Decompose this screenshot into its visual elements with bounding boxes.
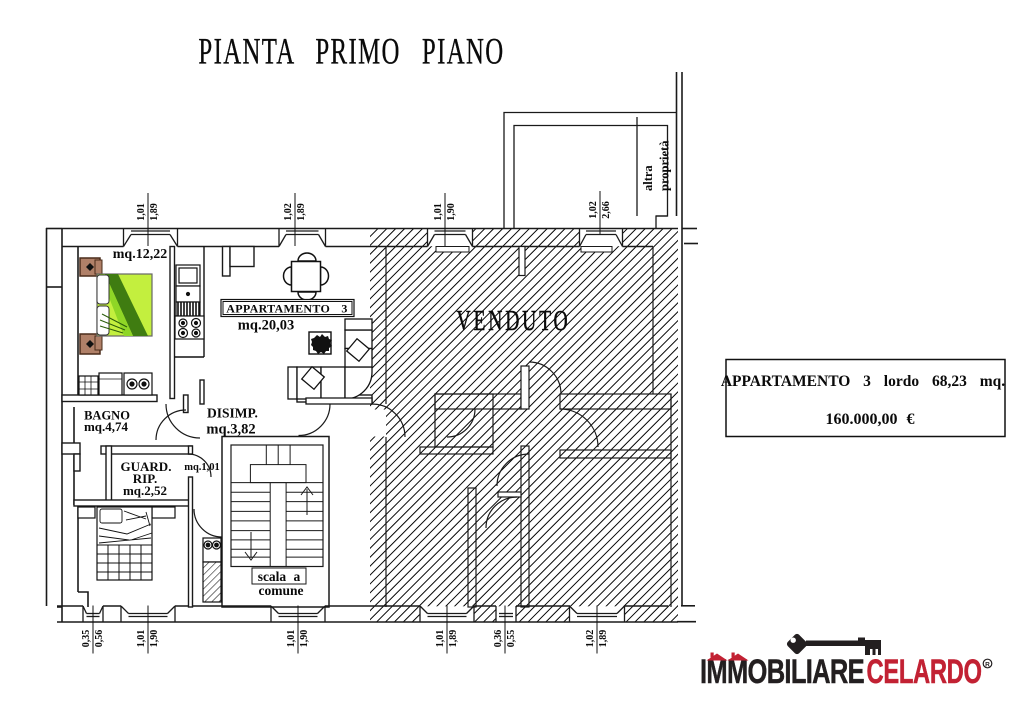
svg-text:0,56: 0,56 — [94, 630, 105, 648]
svg-text:1,89: 1,89 — [296, 203, 307, 221]
svg-text:mq.12,22: mq.12,22 — [113, 247, 167, 262]
svg-text:mq.2,52: mq.2,52 — [123, 483, 167, 498]
svg-text:APPARTAMENTO 3 lordo 68,23 mq.: APPARTAMENTO 3 lordo 68,23 mq. — [721, 373, 1005, 390]
svg-text:1,01: 1,01 — [286, 630, 297, 648]
svg-text:1,01: 1,01 — [136, 203, 147, 221]
svg-text:1,01: 1,01 — [433, 203, 444, 221]
svg-text:160.000,00 €: 160.000,00 € — [826, 411, 915, 428]
svg-text:PIANTA PRIMO PIANO: PIANTA PRIMO PIANO — [198, 31, 504, 72]
svg-text:VENDUTO: VENDUTO — [457, 306, 571, 337]
svg-text:DISIMP.: DISIMP. — [207, 406, 258, 421]
svg-text:0,36: 0,36 — [493, 630, 504, 648]
svg-text:mq.20,03: mq.20,03 — [238, 318, 294, 334]
svg-text:mq.3,82: mq.3,82 — [206, 422, 255, 438]
svg-text:0,55: 0,55 — [506, 630, 517, 648]
svg-text:CELARDO: CELARDO — [867, 653, 982, 691]
svg-text:1,90: 1,90 — [446, 203, 457, 221]
svg-text:1,01: 1,01 — [136, 630, 147, 648]
svg-text:mq.4,74: mq.4,74 — [84, 419, 129, 434]
svg-text:APPARTAMENTO 3: APPARTAMENTO 3 — [226, 302, 347, 316]
svg-text:1,01: 1,01 — [435, 630, 446, 648]
svg-text:1,89: 1,89 — [448, 630, 459, 648]
svg-text:mq.1,01: mq.1,01 — [184, 462, 220, 473]
svg-text:1,02: 1,02 — [585, 630, 596, 648]
svg-text:2,66: 2,66 — [601, 201, 612, 219]
svg-text:R: R — [985, 662, 990, 669]
svg-text:1,02: 1,02 — [588, 201, 599, 219]
svg-text:altra: altra — [641, 165, 655, 191]
svg-text:scala a: scala a — [258, 569, 301, 584]
svg-text:1,89: 1,89 — [598, 630, 609, 648]
svg-text:comune: comune — [259, 583, 304, 598]
svg-text:1,90: 1,90 — [149, 630, 160, 648]
svg-text:0,35: 0,35 — [81, 630, 92, 648]
svg-text:proprietà: proprietà — [658, 140, 672, 191]
svg-text:1,89: 1,89 — [149, 203, 160, 221]
svg-text:1,90: 1,90 — [299, 630, 310, 648]
svg-text:1,02: 1,02 — [283, 203, 294, 221]
